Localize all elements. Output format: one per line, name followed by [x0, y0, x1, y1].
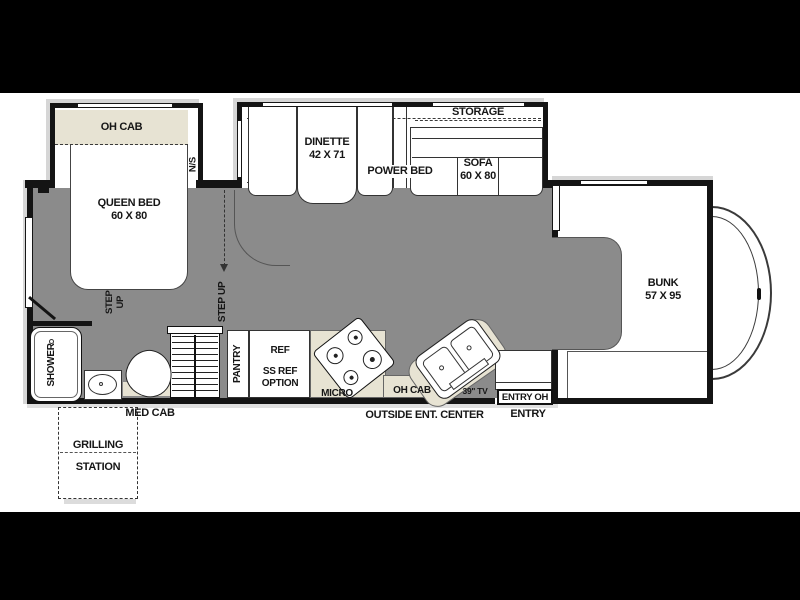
left-wall-window — [25, 217, 33, 308]
pantry-label: PANTRY — [232, 343, 244, 385]
queen-bed-line2: 60 X 80 — [70, 210, 188, 223]
wardrobe-divider — [194, 335, 196, 397]
rv-floorplan: OH CAB N/S QUEEN BED 60 X 80 STEP UP DIN… — [0, 0, 800, 600]
tv-label: 39" TV — [456, 386, 494, 396]
bunk-label: BUNK 57 X 95 — [621, 277, 705, 303]
entry-landing — [495, 350, 552, 390]
storage-label: STORAGE — [447, 106, 509, 119]
nightstand-label: N/S — [187, 153, 198, 177]
bath-sink — [84, 370, 122, 400]
med-cab-label: MED CAB — [119, 407, 181, 420]
micro-label: MICRO — [312, 388, 362, 400]
sofa-label: SOFA 60 X 80 — [446, 157, 510, 183]
entry-oh-label: ENTRY OH — [497, 392, 553, 403]
step-arrow — [220, 264, 228, 272]
bunk-floor-line — [567, 351, 707, 398]
ref-label: REF — [250, 345, 310, 357]
bunk-side-window — [552, 185, 560, 231]
queen-bed-label: QUEEN BED 60 X 80 — [70, 197, 188, 223]
burner-icon-2 — [345, 327, 366, 348]
kitchen-oh-cab-label: OH CAB — [388, 385, 436, 397]
storage-line — [415, 120, 541, 121]
bath-sink-faucet-icon — [99, 382, 103, 386]
wardrobe — [170, 326, 220, 398]
dinette-bench-left — [248, 107, 297, 196]
dinette-side-window — [237, 120, 242, 178]
bedroom-oh-cab-label: OH CAB — [55, 121, 188, 134]
grilling-label-1: GRILLING — [60, 439, 136, 452]
wall-stub-mid — [196, 180, 242, 188]
step-dash-line — [224, 190, 225, 266]
sofa-back-line — [412, 138, 542, 139]
burner-icon-1 — [323, 344, 347, 368]
bedroom-window — [77, 103, 173, 108]
wardrobe-rail — [167, 326, 223, 334]
wall-notch — [38, 186, 49, 193]
queen-bed-line1: QUEEN BED — [70, 197, 188, 210]
bunk-aisle-tongue — [552, 237, 622, 350]
ref-option-label: SS REF OPTION — [250, 366, 310, 390]
bedroom-step-up-label: STEP UP — [104, 285, 126, 319]
entry-step-line — [496, 382, 551, 383]
bath-wall — [30, 321, 92, 326]
aisle-step-up-label: STEP UP — [217, 277, 229, 327]
power-bed-label: POWER BED — [364, 165, 436, 178]
grilling-station-line — [60, 452, 136, 453]
dinette-label: DINETTE 42 X 71 — [297, 136, 357, 162]
grilling-station — [58, 407, 138, 499]
entry-label: ENTRY — [500, 408, 556, 421]
dinette-bench-right — [357, 107, 393, 196]
burner-icon-3 — [340, 367, 361, 388]
grilling-label-2: STATION — [64, 461, 132, 474]
cab-door-tick — [757, 288, 761, 300]
shower-label: SHOWER — [46, 341, 58, 389]
burner-icon-4 — [359, 346, 386, 373]
outside-ent-center-label: OUTSIDE ENT. CENTER — [352, 409, 497, 422]
grilling-shadow — [64, 499, 136, 504]
bunk-window — [580, 180, 648, 185]
